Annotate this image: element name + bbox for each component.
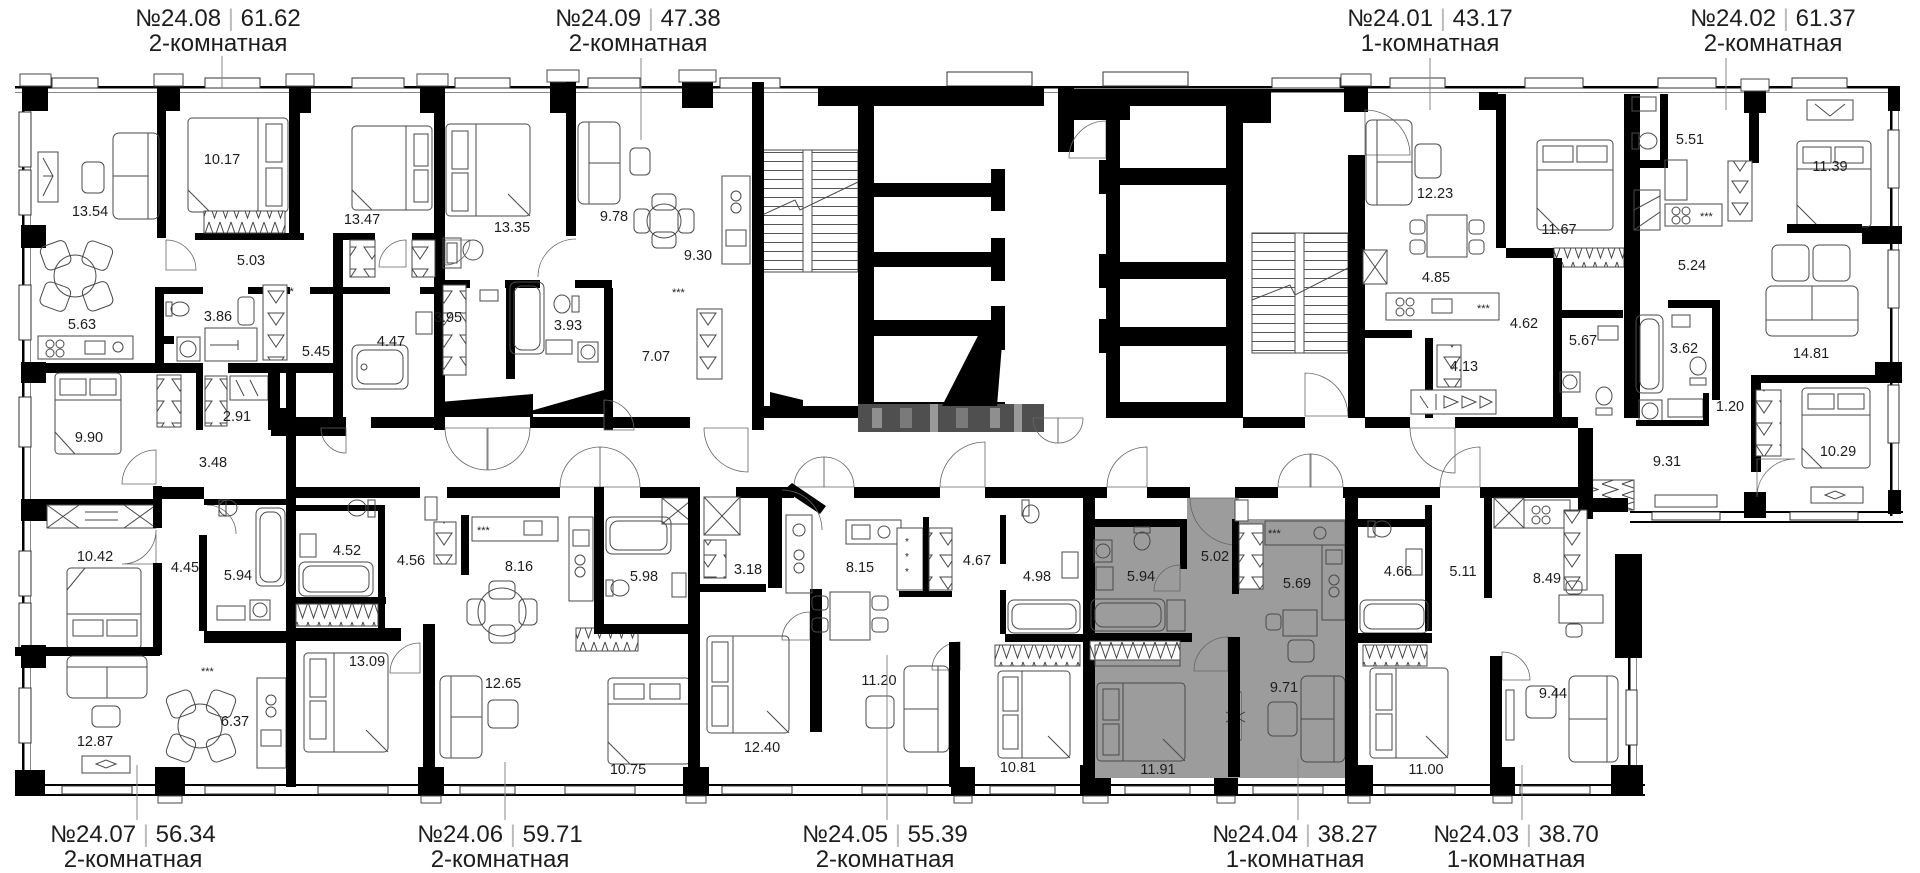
svg-text:№24.09 | 47.38: №24.09 | 47.38 (555, 5, 720, 32)
svg-text:№24.08 | 61.62: №24.08 | 61.62 (135, 5, 300, 32)
svg-text:№24.01 | 43.17: №24.01 | 43.17 (1347, 5, 1512, 32)
svg-text:4.45: 4.45 (171, 560, 199, 576)
svg-text:9.44: 9.44 (1539, 686, 1567, 702)
svg-text:14.81: 14.81 (1793, 346, 1829, 362)
svg-text:5.98: 5.98 (630, 569, 658, 585)
svg-text:4.85: 4.85 (1422, 270, 1450, 286)
svg-text:12.40: 12.40 (744, 740, 780, 756)
svg-text:11.00: 11.00 (1408, 762, 1443, 778)
svg-text:11.91: 11.91 (1140, 762, 1175, 778)
svg-text:13.09: 13.09 (349, 654, 385, 670)
svg-text:10.29: 10.29 (1820, 444, 1856, 460)
svg-text:4.52: 4.52 (333, 543, 361, 559)
svg-text:***: *** (672, 287, 686, 299)
svg-text:2-комнатная: 2-комнатная (149, 30, 288, 57)
svg-text:***: *** (201, 666, 215, 678)
svg-text:5.24: 5.24 (1678, 258, 1706, 274)
svg-text:***: *** (1700, 211, 1714, 223)
svg-text:12.65: 12.65 (485, 676, 521, 692)
svg-text:1-комнатная: 1-комнатная (1447, 846, 1586, 873)
svg-text:№24.04 | 38.27: №24.04 | 38.27 (1212, 821, 1377, 848)
svg-text:2-комнатная: 2-комнатная (431, 846, 570, 873)
svg-text:8.49: 8.49 (1533, 571, 1561, 587)
svg-text:1.20: 1.20 (1716, 399, 1744, 415)
svg-text:№24.02 | 61.37: №24.02 | 61.37 (1690, 5, 1855, 32)
svg-text:*: * (905, 537, 909, 548)
svg-text:1-комнатная: 1-комнатная (1226, 846, 1365, 873)
svg-text:3.48: 3.48 (199, 455, 227, 471)
svg-text:10.17: 10.17 (204, 152, 240, 168)
svg-text:3.93: 3.93 (554, 318, 582, 334)
svg-text:4.66: 4.66 (1384, 564, 1412, 580)
svg-text:5.63: 5.63 (68, 317, 96, 333)
svg-text:10.75: 10.75 (610, 762, 646, 778)
svg-text:5.02: 5.02 (1201, 549, 1229, 565)
svg-text:***: *** (1477, 303, 1491, 315)
svg-text:4.98: 4.98 (1023, 569, 1051, 585)
svg-text:11.67: 11.67 (1541, 222, 1576, 238)
svg-text:№24.03 | 38.70: №24.03 | 38.70 (1433, 821, 1598, 848)
svg-text:5.94: 5.94 (224, 568, 252, 584)
svg-text:12.23: 12.23 (1417, 186, 1453, 202)
svg-text:4.67: 4.67 (963, 553, 991, 569)
svg-text:4.62: 4.62 (1510, 316, 1538, 332)
svg-text:9.30: 9.30 (684, 248, 712, 264)
svg-text:5.67: 5.67 (1569, 333, 1597, 349)
svg-text:4.47: 4.47 (377, 334, 405, 350)
svg-text:8.15: 8.15 (846, 560, 874, 576)
svg-text:5.94: 5.94 (1127, 569, 1155, 585)
svg-text:2-комнатная: 2-комнатная (569, 30, 708, 57)
svg-text:11.20: 11.20 (861, 673, 896, 689)
svg-text:9.78: 9.78 (600, 209, 628, 225)
svg-text:3.18: 3.18 (734, 562, 762, 578)
svg-text:№24.07 | 56.34: №24.07 | 56.34 (50, 821, 215, 848)
svg-text:12.87: 12.87 (77, 734, 113, 750)
svg-text:10.81: 10.81 (1000, 760, 1036, 776)
svg-text:13.47: 13.47 (344, 212, 380, 228)
svg-text:3.62: 3.62 (1670, 341, 1698, 357)
svg-text:2.91: 2.91 (223, 409, 251, 425)
svg-text:3.95: 3.95 (434, 310, 462, 326)
svg-text:2-комнатная: 2-комнатная (816, 846, 955, 873)
svg-text:1-комнатная: 1-комнатная (1361, 30, 1500, 57)
svg-text:*: * (905, 552, 909, 563)
svg-text:5.03: 5.03 (237, 253, 265, 269)
svg-text:5.51: 5.51 (1676, 132, 1704, 148)
svg-text:11.39: 11.39 (1812, 159, 1847, 175)
svg-text:13.54: 13.54 (72, 204, 108, 220)
svg-text:4.13: 4.13 (1450, 359, 1478, 375)
svg-text:№24.05 | 55.39: №24.05 | 55.39 (802, 821, 967, 848)
svg-text:***: *** (1268, 528, 1282, 540)
svg-text:6.37: 6.37 (221, 714, 249, 730)
svg-text:5.45: 5.45 (302, 344, 330, 360)
svg-text:10.42: 10.42 (77, 549, 113, 565)
svg-text:4.56: 4.56 (397, 553, 425, 569)
svg-text:13.35: 13.35 (494, 220, 530, 236)
svg-text:5.11: 5.11 (1449, 564, 1476, 580)
svg-text:9.31: 9.31 (1653, 454, 1681, 470)
svg-text:9.71: 9.71 (1270, 680, 1298, 696)
svg-text:2-комнатная: 2-комнатная (1704, 30, 1843, 57)
svg-text:№24.06 | 59.71: №24.06 | 59.71 (417, 821, 582, 848)
svg-text:*: * (905, 567, 909, 578)
svg-text:9.90: 9.90 (75, 430, 103, 446)
svg-text:***: *** (477, 525, 491, 537)
svg-text:7.07: 7.07 (642, 349, 670, 365)
svg-text:8.16: 8.16 (505, 559, 533, 575)
svg-text:5.69: 5.69 (1283, 576, 1311, 592)
svg-text:2-комнатная: 2-комнатная (64, 846, 203, 873)
svg-text:3.86: 3.86 (204, 309, 232, 325)
